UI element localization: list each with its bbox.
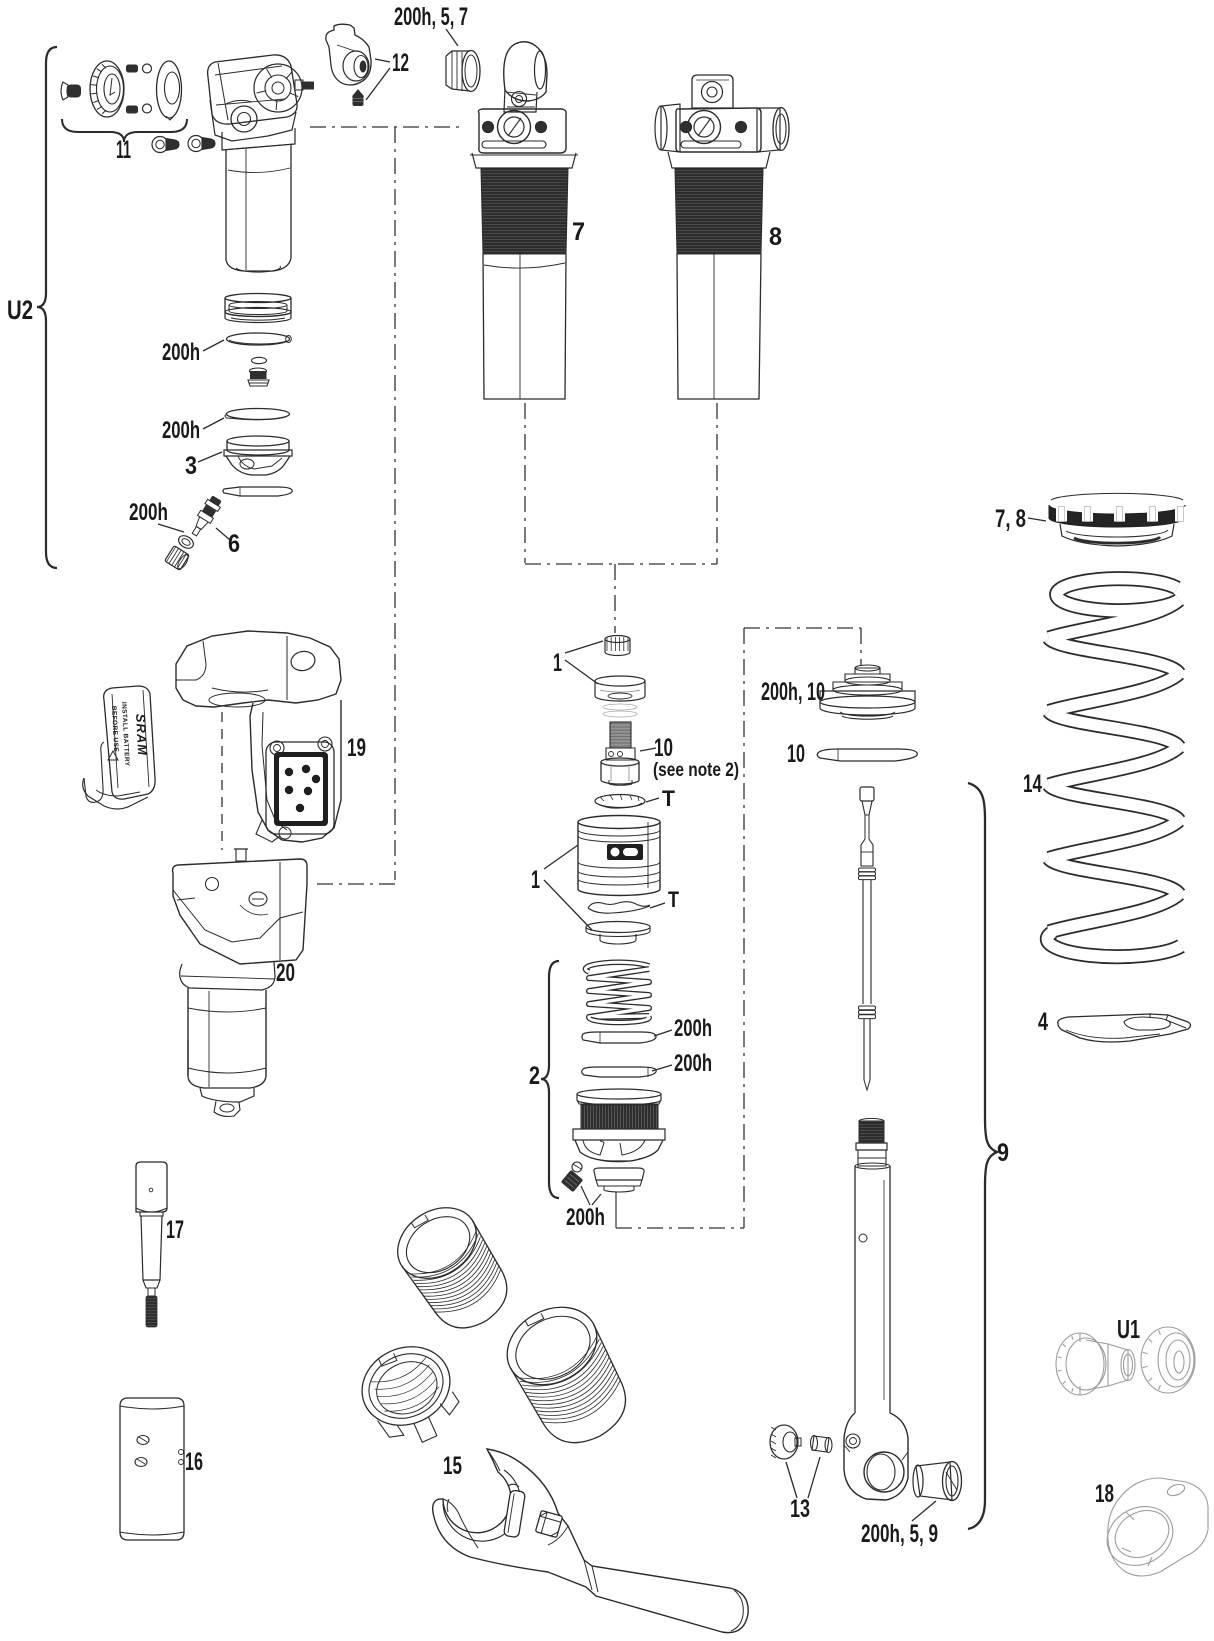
svg-text:SRAM: SRAM	[133, 713, 150, 756]
svg-text:7, 8: 7, 8	[995, 505, 1026, 533]
svg-text:1: 1	[553, 649, 562, 677]
svg-text:200h: 200h	[674, 1050, 712, 1077]
svg-text:15: 15	[443, 1452, 462, 1480]
svg-text:10: 10	[654, 734, 673, 762]
svg-text:200h: 200h	[674, 1015, 712, 1042]
svg-text:8: 8	[769, 223, 782, 251]
svg-text:200h: 200h	[129, 499, 168, 526]
svg-text:T: T	[662, 786, 676, 811]
svg-text:200h, 5, 7: 200h, 5, 7	[394, 3, 468, 31]
svg-text:U2: U2	[7, 295, 33, 325]
svg-text:17: 17	[166, 1216, 184, 1244]
svg-text:6: 6	[228, 530, 240, 558]
svg-text:(see note 2): (see note 2)	[653, 759, 739, 781]
svg-text:200h, 5, 9: 200h, 5, 9	[861, 1520, 938, 1548]
svg-text:20: 20	[276, 959, 295, 987]
svg-text:2: 2	[529, 1062, 540, 1090]
svg-text:200h: 200h	[162, 417, 200, 444]
svg-text:12: 12	[392, 49, 409, 77]
svg-text:16: 16	[185, 1448, 203, 1476]
svg-text:U1: U1	[1117, 1314, 1140, 1344]
svg-text:4: 4	[1038, 1008, 1048, 1036]
svg-text:19: 19	[347, 734, 366, 762]
svg-text:14: 14	[1023, 770, 1042, 798]
svg-text:T: T	[668, 887, 679, 912]
svg-text:9: 9	[997, 1139, 1009, 1167]
svg-text:3: 3	[185, 452, 197, 480]
svg-text:200h: 200h	[566, 1204, 605, 1231]
svg-text:200h, 10: 200h, 10	[761, 678, 825, 706]
svg-text:7: 7	[572, 218, 585, 246]
svg-text:11: 11	[116, 136, 131, 164]
svg-text:13: 13	[790, 1495, 810, 1523]
svg-text:18: 18	[1095, 1480, 1114, 1508]
svg-text:10: 10	[787, 740, 805, 768]
svg-text:200h: 200h	[162, 339, 200, 366]
svg-text:1: 1	[531, 866, 540, 894]
